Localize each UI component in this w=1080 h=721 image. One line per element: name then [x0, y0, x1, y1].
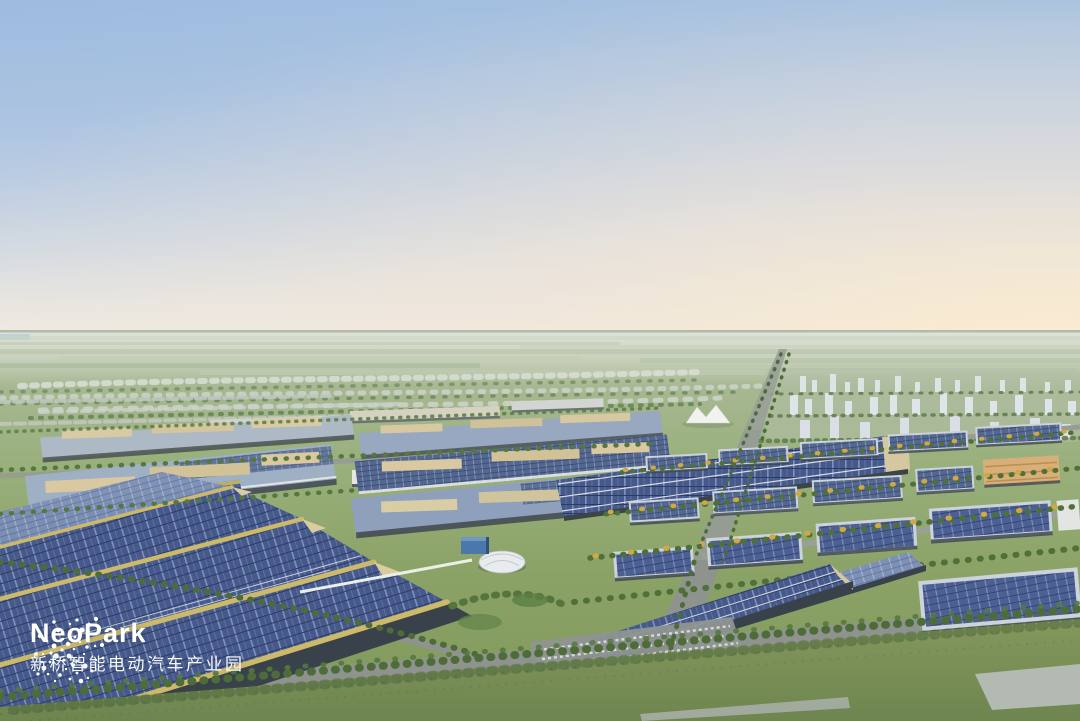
dome-building	[478, 551, 526, 573]
neopark-logo-mark-icon	[30, 612, 110, 688]
glass-office-building	[461, 537, 489, 554]
neopark-logo: NeoPark 新桥智能电动汽车产业园	[30, 612, 245, 673]
sky	[0, 0, 1080, 340]
aerial-rendering-neopark: NeoPark 新桥智能电动汽车产业园	[0, 0, 1080, 721]
logo-subtitle: 新桥智能电动汽车产业园	[30, 656, 245, 673]
